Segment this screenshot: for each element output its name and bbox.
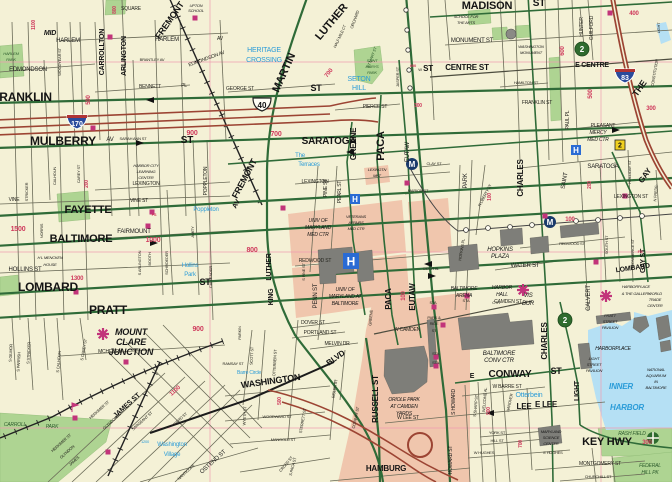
map-label: SCHROEDER xyxy=(164,251,169,275)
hospital-lg-icon: H xyxy=(343,253,359,269)
map-label: NORRIS xyxy=(39,223,44,238)
map-label: W BARRE ST xyxy=(492,384,521,390)
map-label: HOPKINS xyxy=(487,247,513,253)
map-label: HOLLINS ST xyxy=(8,267,42,273)
map-label: EUTAW xyxy=(408,283,417,311)
map-label: S PINE ST xyxy=(301,262,306,280)
map-label: 1200 xyxy=(141,439,150,444)
map-label: & THE GALLERY xyxy=(622,291,651,296)
sq-icon xyxy=(106,450,111,455)
map-label: HILL xyxy=(352,85,366,92)
i-shield-label: 170 xyxy=(71,121,83,128)
map-label: HOWARD ST xyxy=(448,446,454,475)
map-label: Poppleton xyxy=(193,207,218,213)
map-label: CONSTITUTION xyxy=(650,58,660,86)
i-shield-label: 83 xyxy=(621,75,629,82)
map-label: IN xyxy=(654,379,658,384)
map-label: S PARRISH xyxy=(15,352,21,372)
map-label: GEORGE ST xyxy=(226,86,254,92)
map-label: MID xyxy=(44,30,56,37)
map-label: SOUTH ST xyxy=(604,235,609,254)
map-label: BOOTH xyxy=(147,252,152,266)
map-label: W LEE ST xyxy=(397,415,419,421)
map-label: LEE xyxy=(517,402,533,411)
map-label: VINE ST xyxy=(130,198,148,204)
map-label: MULBERRY xyxy=(30,134,96,148)
map-label: 900 xyxy=(186,130,197,137)
route-square-label: 2 xyxy=(618,143,622,150)
map-label: BRANTLEY AV xyxy=(140,57,165,62)
map-label: 300 xyxy=(642,440,652,446)
map-label: 700 xyxy=(324,67,335,79)
map-label: MCHENRY xyxy=(98,349,123,355)
map-label: 600 xyxy=(560,45,566,55)
flag-icon xyxy=(72,403,78,412)
map-label: MED CTR xyxy=(307,232,329,238)
map-label: NANTICOKE xyxy=(176,462,196,480)
map-label: RAMSAY ST xyxy=(223,361,245,366)
map-label: 400 xyxy=(629,11,639,17)
map-label: NATIONAL xyxy=(647,367,665,372)
sq-icon xyxy=(91,126,96,131)
map-label: 1100 xyxy=(31,20,37,30)
map-label: CROSSING xyxy=(246,57,282,64)
map-label: Otterbein xyxy=(516,392,543,399)
map-label: W HUGHES xyxy=(474,450,495,455)
map-label: ST xyxy=(432,328,437,333)
map-label: UNIV OF xyxy=(336,287,356,293)
map-label: AQUARIUM xyxy=(645,373,667,378)
map-label: ST xyxy=(199,277,211,287)
map-label: AV xyxy=(106,137,113,143)
map-label: PEARL ST xyxy=(337,181,343,204)
map-label: TRADE xyxy=(649,297,662,302)
map-label: HOLLIDAY ST xyxy=(627,160,632,184)
map-label: HERKIMER ST xyxy=(88,399,111,420)
map-label: PRATT xyxy=(89,303,128,317)
map-label: HILL PK xyxy=(641,470,659,476)
map-label: HARBOR xyxy=(610,403,644,412)
map-label: MADISON xyxy=(462,0,513,12)
map-label: STA. xyxy=(432,360,440,365)
map-label: Hollins xyxy=(182,263,199,269)
map-label: WATER ST xyxy=(511,263,540,269)
sq-icon xyxy=(543,214,548,219)
map-label: PORTLAND ST xyxy=(304,330,337,336)
map-label: 1000 xyxy=(146,237,161,244)
map-label: PARKIN xyxy=(237,326,242,340)
sq-icon xyxy=(594,260,599,265)
map-label: KEY HWY xyxy=(582,436,633,448)
map-label: SETON xyxy=(348,76,371,83)
building-convention-center xyxy=(458,313,534,350)
map-label: PACA xyxy=(375,131,387,161)
map-label: SARAH ANN ST xyxy=(120,136,148,141)
map-label: HARBORPLACE xyxy=(595,346,631,352)
map-label: UNIV OF xyxy=(309,218,329,224)
map-label: GREENE xyxy=(349,127,358,160)
map-label: AFFAIRS xyxy=(347,220,364,225)
map-label: PARK & xyxy=(427,315,441,320)
map-label: SQUARE xyxy=(121,6,142,12)
map-label: 500 xyxy=(588,88,594,98)
star-icon xyxy=(600,290,612,302)
map-label: REDWOOD ST xyxy=(299,258,332,264)
baltimore-street-map[interactable]: 1708340222MMHHH SQUARE800UPTONSCHOOL1100… xyxy=(0,0,672,482)
map-label: PRATT xyxy=(604,313,617,318)
sq-icon xyxy=(73,416,78,421)
building-hopkins-tower-2 xyxy=(530,236,549,254)
map-label: PARK xyxy=(46,424,59,430)
map-label: EDMONDSON xyxy=(9,67,47,73)
map-label: THE ARTS xyxy=(457,20,475,25)
map-label: ORCHARD xyxy=(349,9,360,29)
map-label: CHARLES xyxy=(540,322,549,360)
map-label: AV xyxy=(232,198,243,210)
map-label: CAMDEN ST xyxy=(494,299,522,305)
map-label: SAINT xyxy=(561,172,570,190)
map-label: CENTER xyxy=(543,441,559,446)
map-label: S CAREY ST xyxy=(79,338,88,361)
map-label: ORIOLE PARK xyxy=(388,397,420,403)
map-label: INNER xyxy=(609,382,633,391)
map-label: THE xyxy=(630,78,648,98)
map-label: LOMBARD xyxy=(18,280,78,294)
map-label: LUTHER xyxy=(313,1,350,42)
map-label: PINE ST xyxy=(323,179,329,197)
sq-icon xyxy=(281,206,286,211)
sq-icon xyxy=(432,305,437,310)
sq-icon xyxy=(405,181,410,186)
map-label: MED CTR xyxy=(587,137,609,143)
map-label: E HUGHES xyxy=(543,450,563,455)
map-label: S ARLINGTON xyxy=(137,250,142,275)
map-label: COMMERCE ST xyxy=(630,238,635,267)
map-label: LEARNING xyxy=(137,169,156,174)
map-label: 500 xyxy=(277,397,283,405)
map-label: CAREY ST xyxy=(76,164,81,183)
map-label: STA xyxy=(463,298,470,303)
map-label: E LEE xyxy=(535,400,558,409)
map-label: 300 xyxy=(646,106,656,112)
map-label: AMITY xyxy=(190,226,195,238)
map-label: Village xyxy=(164,452,181,458)
map-label: 900 xyxy=(192,326,203,333)
map-label: VETERANS xyxy=(346,214,366,219)
map-label: 700 xyxy=(270,131,281,138)
map-label: AT CAMDEN xyxy=(389,404,418,410)
map-label: YORK ST xyxy=(489,430,506,435)
map-label: BALTIMORE xyxy=(483,351,517,357)
map-label: 500 xyxy=(86,94,92,104)
map-label: MKT xyxy=(373,173,382,178)
map-label: PAVILION xyxy=(586,368,603,373)
star-icon xyxy=(97,328,109,340)
map-label: LEXINGTN xyxy=(368,167,387,172)
i-shield-icon: 170 xyxy=(67,115,87,129)
map-label: HARLEM xyxy=(56,38,80,44)
map-label: CALHOUN xyxy=(52,167,57,185)
map-label: MED CTR xyxy=(348,226,365,231)
map-label: REDWOOD ST xyxy=(559,241,585,246)
map-label: 800 xyxy=(246,247,257,254)
map-label: MARYLAND xyxy=(305,225,332,231)
map-label: GAY xyxy=(637,166,654,185)
map-label: EUTAW xyxy=(405,141,411,162)
map-label: 300 xyxy=(414,103,422,109)
map-label: SARATOGA xyxy=(587,164,618,170)
map-label: CENTRE ST xyxy=(445,63,489,72)
map-label: CLAY ST xyxy=(427,161,443,166)
map-label: WYETH ST xyxy=(242,406,248,426)
map-label: RUSSELL ST xyxy=(371,375,380,423)
map-label: HANOVER xyxy=(505,393,514,412)
map-label: SCIENCE xyxy=(543,435,560,440)
map-label: LIGHT xyxy=(574,380,581,401)
map-label: 500 xyxy=(486,407,492,415)
map-label: HUNTER xyxy=(579,17,585,37)
map-label: PLEASANT xyxy=(591,123,616,129)
map-label: VIS xyxy=(523,293,532,299)
map-label: 100 xyxy=(401,290,407,300)
map-label: HERITAGE xyxy=(247,47,281,54)
map-label: BENNETT xyxy=(139,84,161,90)
map-label: PAVILION xyxy=(602,325,619,330)
route-square-icon: 2 xyxy=(615,140,625,150)
hospital-label: H xyxy=(352,195,358,204)
map-label: H L MENCKEN xyxy=(37,255,62,260)
us40-corridor xyxy=(0,106,330,120)
map-label: FAIRMOUNT xyxy=(117,229,151,235)
zone-east-ummc xyxy=(408,198,452,255)
map-label: FEDERAL xyxy=(639,463,661,469)
map-label: The xyxy=(295,153,306,159)
map-label: OTTERBEIN ST xyxy=(271,349,277,377)
map-label: HARBOR CITY xyxy=(133,163,159,168)
sq-icon xyxy=(441,323,446,328)
map-label: JAMES ST xyxy=(112,391,142,419)
map-label: PARK xyxy=(463,173,469,188)
map-label: HALL xyxy=(496,292,508,298)
map-label: LIGHT xyxy=(589,356,601,361)
map-label: FS xyxy=(152,212,157,217)
map-label: CHURCHILL ST xyxy=(585,474,612,479)
map-label: AV xyxy=(217,36,224,42)
map-label: ST xyxy=(550,366,562,376)
hospital-label: H xyxy=(573,146,579,155)
route-circle-label: 2 xyxy=(580,45,585,54)
map-label: WOODWARD ST xyxy=(263,414,293,419)
sq-icon xyxy=(108,35,113,40)
map-label: GUILFORD xyxy=(589,15,595,40)
map-label: MARYLAND AT xyxy=(329,294,363,300)
route-circle-label: 2 xyxy=(563,316,568,325)
map-label: FAYETTE xyxy=(64,204,111,216)
map-label: FRANKLIN xyxy=(0,90,52,104)
map-label: PLAZA xyxy=(491,254,509,260)
map-label: SAINT xyxy=(367,58,379,63)
hospital-icon: H xyxy=(571,145,581,155)
map-label: STREET xyxy=(603,319,618,324)
map-label: 1500 xyxy=(11,226,26,233)
map-label: 200 xyxy=(84,180,90,188)
map-label: CARROLLTON xyxy=(99,29,106,75)
map-label: RIDE xyxy=(430,321,439,326)
map-label: MARYS xyxy=(365,64,379,69)
map-label: CALVERT xyxy=(586,285,592,311)
route-circle-icon: 2 xyxy=(575,42,589,56)
map-label: FS xyxy=(638,249,643,254)
map-label: E xyxy=(470,373,475,380)
map-label: HAMBURG xyxy=(366,464,406,473)
map-label: PL xyxy=(181,83,187,89)
map-label: MANGOLD ST xyxy=(271,437,296,442)
sq-icon xyxy=(608,11,613,16)
map-label: CENTER xyxy=(138,175,154,180)
map-label: HARLEM xyxy=(3,51,19,56)
map-label: 200 xyxy=(587,181,593,189)
building-aquarium-2 xyxy=(660,340,671,352)
map-label: FRANKLIN ST xyxy=(522,100,552,106)
map-label: CARROLL xyxy=(4,422,27,428)
map-label: LEXINGTON xyxy=(132,181,160,187)
map-label: HOUSE xyxy=(43,262,57,267)
map-label: 700 xyxy=(518,440,524,448)
map-label: SCHOOL FOR xyxy=(454,14,479,19)
map-label: S HOWARD xyxy=(451,389,457,415)
map-label: Park xyxy=(184,272,197,278)
map-label: WASHINGTON xyxy=(518,44,544,49)
map-label: BALTIMORE xyxy=(645,385,667,390)
sq-icon xyxy=(124,360,129,365)
hospital-icon: H xyxy=(350,194,360,204)
route-circle-icon: 2 xyxy=(558,313,572,327)
map-label: WORLD xyxy=(648,291,662,296)
map-label: S GILMOR xyxy=(8,344,14,363)
map-label: 1300 xyxy=(71,276,84,282)
building-hopkins-tower-1 xyxy=(500,228,523,246)
map-label: STRICKER xyxy=(24,182,29,201)
map-label: STA xyxy=(430,300,437,305)
map-label: SCOTT ST xyxy=(249,346,255,365)
map-label: MELVIN DR xyxy=(324,341,350,347)
map-label: POPPLETON xyxy=(203,166,209,195)
map-label: MARION ST xyxy=(408,188,429,193)
map-label: 100 xyxy=(487,193,493,201)
map-label: MONTGOMERY ST xyxy=(579,461,621,467)
park-mt-vernon-e xyxy=(515,25,531,38)
map-label: Terraces xyxy=(298,162,320,168)
map-label: HARBOR xyxy=(492,285,513,291)
map-label: CENTER xyxy=(647,303,663,308)
map-label: VINE xyxy=(9,197,21,203)
map-label: LIGHT xyxy=(656,22,661,34)
sq-icon xyxy=(146,224,151,229)
map-label: CIDER AL xyxy=(423,266,441,271)
map-label: STREET xyxy=(587,362,602,367)
map-label: CONV CTR xyxy=(484,358,515,364)
map-label: BALTIMORE xyxy=(451,286,479,292)
map-label: MERCY xyxy=(589,130,607,136)
sq-icon xyxy=(193,16,198,21)
map-label: MONUMENT xyxy=(520,50,543,55)
map-label: PACA xyxy=(384,288,393,310)
map-viewport[interactable]: 1708340222MMHHH SQUARE800UPTONSCHOOL1100… xyxy=(0,0,672,482)
map-label: 800 xyxy=(112,6,118,14)
map-label: ST xyxy=(423,64,433,73)
map-label: SCHOOL xyxy=(188,8,204,13)
map-label: HILL ST xyxy=(490,438,504,443)
metro-label: M xyxy=(547,218,554,227)
map-label: PARK xyxy=(6,57,16,62)
map-label: DOVER ST xyxy=(301,320,325,326)
map-label: CONWAY xyxy=(489,369,532,380)
map-label: LUTHER xyxy=(266,253,273,280)
map-label: RASH FIELD xyxy=(618,431,646,437)
us-shield-label: 40 xyxy=(258,101,267,110)
map-label: W xyxy=(418,67,422,72)
monument-icon xyxy=(506,29,516,39)
map-label: MONUMENT ST xyxy=(451,38,494,44)
map-label: PENN ST xyxy=(313,283,319,308)
map-label: KING xyxy=(268,288,275,305)
map-label: BUR xyxy=(522,301,535,307)
map-label: 100 xyxy=(565,217,575,223)
map-label: ST xyxy=(533,0,545,9)
map-label: JASPER ST xyxy=(395,66,400,87)
map-label: MOUNT xyxy=(115,327,149,337)
map-label: OSTEND ST xyxy=(199,449,228,476)
map-label: HARBORPLACE xyxy=(622,284,651,289)
map-label: CHARLES xyxy=(516,159,525,197)
map-label: LEXINGTON ST xyxy=(614,194,648,200)
map-label: PAUL PL xyxy=(565,110,571,129)
map-label: ARLINGTON xyxy=(121,36,128,76)
building-office-row xyxy=(560,222,599,238)
map-label: Barre Circle xyxy=(237,370,261,376)
map-label: WOODYEAR ST xyxy=(57,47,62,76)
map-label: BALTIMORE xyxy=(332,301,360,307)
map-label: Washington xyxy=(157,442,186,448)
map-label: PARK xyxy=(367,70,377,75)
map-label: 600 xyxy=(410,63,417,68)
map-label: STA. xyxy=(432,351,440,356)
map-label: BALTIMORE xyxy=(50,233,113,245)
map-label: PIERCE ST xyxy=(363,104,388,110)
map-label: FREMONT xyxy=(153,0,186,41)
map-label: ST xyxy=(310,83,322,93)
map-label: HAMILTON ST xyxy=(514,80,539,85)
park-mt-vernon-w xyxy=(492,27,508,40)
map-label: W CAMDEN xyxy=(394,327,421,333)
street-franklin xyxy=(0,86,672,103)
map-label: STERRETT ST xyxy=(298,407,307,433)
map-label: CLARE xyxy=(116,337,147,347)
hospital-lg-label: H xyxy=(347,255,356,269)
map-label: E CENTRE xyxy=(575,62,609,69)
map-label: MARYLAND xyxy=(541,429,562,434)
